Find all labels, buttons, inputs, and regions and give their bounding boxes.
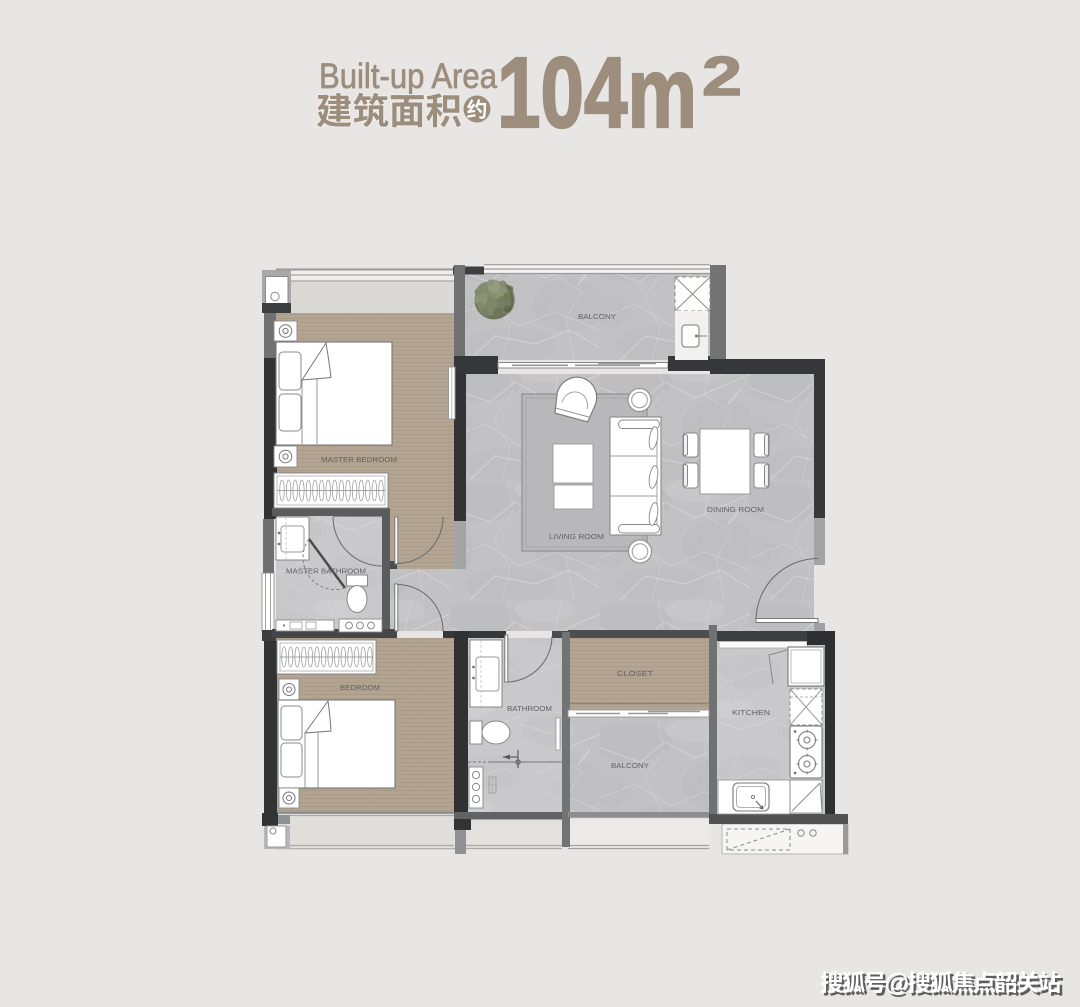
svg-text:LIVING ROOM: LIVING ROOM <box>549 532 604 541</box>
svg-text:BEDROOM: BEDROOM <box>340 683 380 692</box>
svg-text:KITCHEN: KITCHEN <box>732 708 770 717</box>
svg-text:MASTER BATHROOM: MASTER BATHROOM <box>286 567 366 576</box>
svg-text:CLOSET: CLOSET <box>617 669 653 678</box>
svg-text:MASTER BEDROOM: MASTER BEDROOM <box>321 455 397 464</box>
svg-text:BALCONY: BALCONY <box>611 761 649 770</box>
svg-text:@: @ <box>885 969 909 997</box>
svg-text:2: 2 <box>702 45 742 107</box>
svg-text:Built-up Area: Built-up Area <box>319 57 497 96</box>
svg-text:104m: 104m <box>497 37 697 149</box>
svg-text:BALCONY: BALCONY <box>578 312 616 321</box>
svg-text:DINING ROOM: DINING ROOM <box>707 505 764 514</box>
svg-text:BATHROOM: BATHROOM <box>507 704 552 713</box>
